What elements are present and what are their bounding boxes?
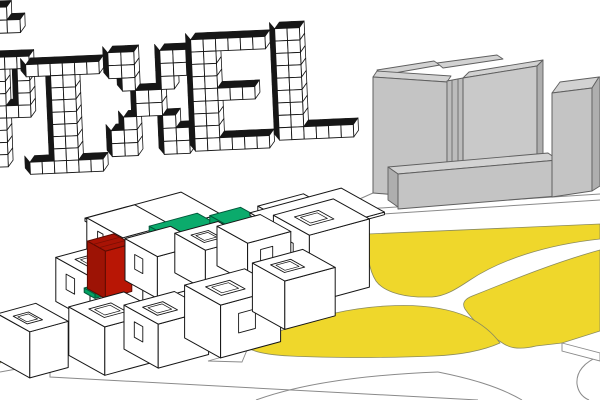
voxel-face (191, 39, 204, 52)
voxel-face (279, 127, 292, 140)
letter-I (20, 55, 108, 175)
tower-b-side (537, 60, 543, 162)
voxel-face (228, 38, 241, 51)
voxel-face (87, 61, 100, 74)
voxel-face (206, 101, 219, 114)
letter-fragment (0, 0, 25, 34)
voxel-face (160, 50, 174, 64)
voxel-face (195, 138, 208, 151)
roof-strip-2 (437, 55, 503, 68)
voxel-face (64, 99, 77, 112)
voxel-face (277, 90, 290, 103)
voxel-face (257, 136, 270, 149)
voxel-face (191, 52, 204, 65)
voxel-face (290, 90, 303, 103)
voxel-face (205, 88, 218, 101)
voxel-face (38, 64, 51, 77)
voxel-face (51, 87, 64, 100)
tower-right-front (552, 88, 592, 197)
voxel-face (253, 36, 266, 49)
letter-E (185, 30, 274, 152)
voxel-face (65, 136, 78, 149)
voxel-face (54, 148, 67, 161)
voxel-face (194, 126, 207, 139)
voxel-face (0, 118, 7, 131)
voxel-face (62, 63, 75, 76)
tower-right-side (592, 77, 600, 191)
voxel-face (160, 63, 174, 77)
voxel-face (108, 65, 122, 79)
letter-X (102, 43, 195, 157)
voxel-face (52, 112, 65, 125)
module-front-3 (252, 249, 335, 329)
voxel-face (276, 65, 289, 78)
wing-left (388, 167, 398, 207)
voxel-face (232, 137, 245, 150)
voxel-face (288, 40, 301, 53)
voxel-face (0, 155, 8, 168)
voxel-face (112, 143, 126, 157)
voxel-face (135, 90, 149, 104)
voxel-face (124, 130, 138, 144)
voxel-face (278, 102, 291, 115)
voxel-face (0, 81, 6, 94)
voxel-face (230, 87, 243, 100)
voxel-face (176, 127, 190, 141)
walkway-curve-mid (438, 372, 522, 400)
voxel-face (66, 160, 79, 173)
voxel-face (163, 128, 177, 142)
voxel-face (173, 49, 187, 63)
voxel-face (275, 28, 288, 41)
voxel-face (148, 89, 162, 103)
voxel-face (215, 38, 228, 51)
voxel-face (276, 53, 289, 66)
voxel-face (275, 41, 288, 54)
voxel-face (220, 137, 233, 150)
voxel-face (0, 69, 5, 82)
voxel-face (204, 63, 217, 76)
voxel-face (122, 78, 136, 92)
voxel-side (25, 156, 31, 175)
voxel-face (111, 130, 125, 144)
voxel-face (304, 126, 317, 139)
voxel-face (26, 64, 39, 77)
voxel-face (53, 124, 66, 137)
voxel-face (0, 94, 6, 107)
voxel-face (65, 123, 78, 136)
voxel-face (177, 140, 191, 154)
voxel-face (291, 127, 304, 140)
voxel-face (18, 81, 31, 94)
voxel-face (0, 106, 7, 119)
voxel-face (64, 111, 77, 124)
voxel-face (4, 57, 17, 70)
voxel-face (0, 130, 7, 143)
voxel-face (6, 105, 19, 118)
voxel-face (289, 65, 302, 78)
voxel-face (50, 63, 63, 76)
window (239, 309, 256, 333)
voxel-face (53, 136, 66, 149)
voxel-face (125, 143, 139, 157)
voxel-face (207, 125, 220, 138)
voxel-face (0, 142, 8, 155)
voxel-face (341, 125, 354, 138)
voxel-face (204, 51, 217, 64)
letter-L (269, 19, 358, 141)
voxel-face (194, 113, 207, 126)
voxel-face (207, 138, 220, 151)
voxel-face (18, 105, 31, 118)
scene-canvas: PIXEL (0, 0, 600, 400)
voxel-face (203, 39, 216, 52)
voxel-face (149, 102, 163, 116)
voxel-face (63, 87, 76, 100)
voxel-face (290, 102, 303, 115)
voxel-face (277, 78, 290, 91)
voxel-face (136, 103, 150, 117)
voxel-face (316, 126, 329, 139)
voxel-face (291, 114, 304, 127)
walkway-curve-right (577, 356, 600, 400)
voxel-face (328, 125, 341, 138)
voxel-face (108, 52, 122, 66)
voxel-face (74, 62, 87, 75)
voxel-face (288, 52, 301, 65)
voxel-face (192, 76, 205, 89)
voxel-face (205, 76, 218, 89)
voxel-face (193, 101, 206, 114)
pixel-voxel-title (0, 0, 359, 175)
voxel-face (240, 37, 253, 50)
module-front-left (0, 303, 68, 378)
voxel-face (63, 75, 76, 88)
plaza-edge (0, 363, 478, 400)
voxel-face (218, 88, 231, 101)
voxel-face (91, 159, 104, 172)
curb-right (562, 343, 600, 361)
voxel-face (244, 136, 257, 149)
voxel-face (18, 93, 31, 106)
voxel-face (121, 52, 135, 66)
voxel-face (7, 20, 20, 33)
voxel-face (242, 87, 255, 100)
voxel-face (0, 20, 7, 33)
voxel-face (124, 117, 138, 131)
voxel-face (173, 62, 187, 76)
voxel-face (289, 77, 302, 90)
voxel-face (278, 115, 291, 128)
voxel-face (161, 76, 175, 90)
voxel-face (192, 64, 205, 77)
voxel-face (30, 162, 43, 175)
voxel-face (0, 7, 7, 20)
voxel-face (79, 159, 92, 172)
voxel-face (193, 89, 206, 102)
voxel-face (287, 28, 300, 41)
voxel-face (52, 100, 65, 113)
voxel-face (66, 148, 79, 161)
voxel-face (121, 65, 135, 79)
voxel-face (164, 141, 178, 155)
voxel-face (51, 75, 64, 88)
walkway-curve-left (256, 372, 438, 400)
voxel-face (54, 161, 67, 174)
neighbor-buildings (373, 55, 600, 209)
voxel-face (206, 113, 219, 126)
voxel-face (42, 161, 55, 174)
voxel-face (163, 115, 177, 129)
